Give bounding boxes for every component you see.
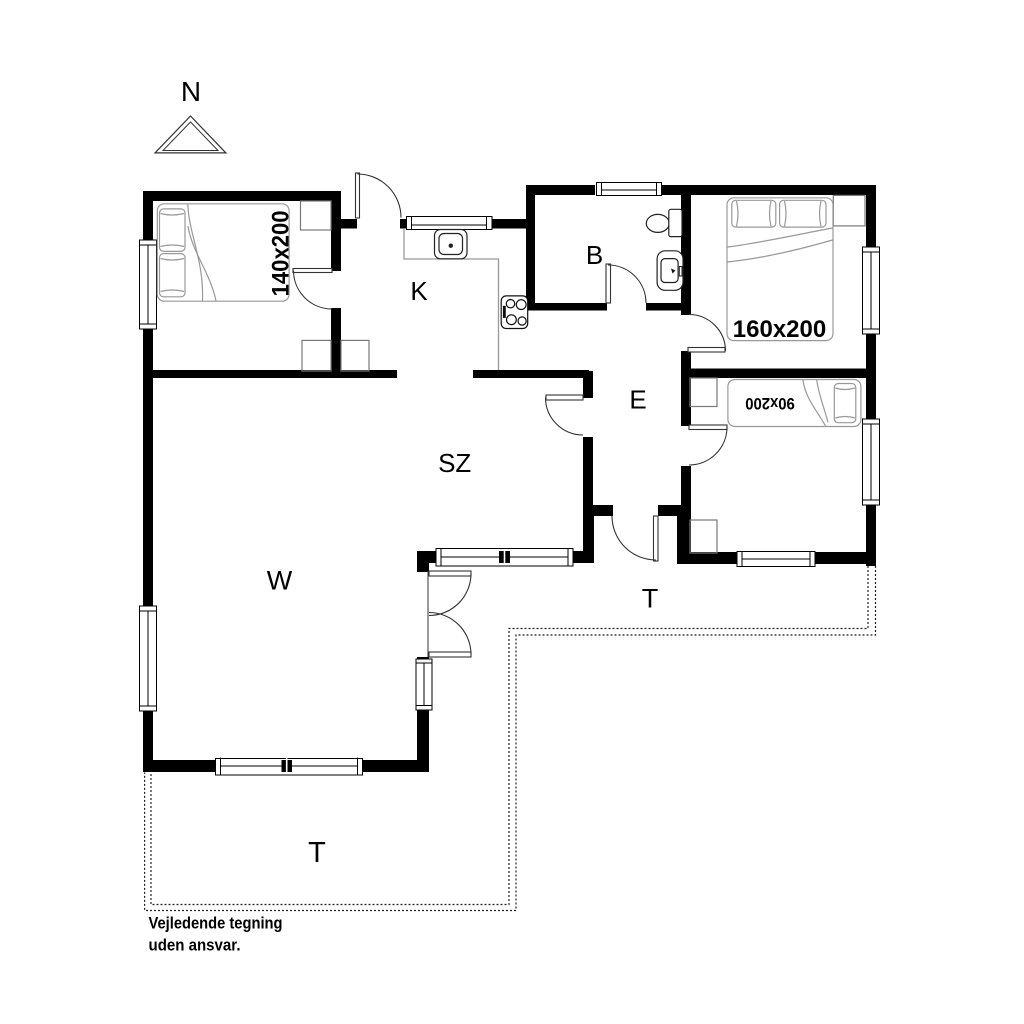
svg-text:K: K — [410, 276, 428, 306]
svg-text:T: T — [308, 837, 326, 869]
svg-text:160x200: 160x200 — [733, 316, 826, 343]
svg-text:W: W — [267, 566, 293, 596]
svg-text:N: N — [181, 76, 201, 107]
svg-text:90x200: 90x200 — [745, 394, 795, 413]
svg-text:140x200: 140x200 — [268, 210, 295, 296]
svg-text:B: B — [586, 240, 603, 270]
svg-text:SZ: SZ — [438, 448, 471, 478]
svg-text:uden ansvar.: uden ansvar. — [149, 936, 241, 955]
svg-text:E: E — [629, 385, 646, 415]
svg-text:T: T — [642, 584, 659, 614]
svg-text:Vejledende tegning: Vejledende tegning — [149, 914, 283, 933]
